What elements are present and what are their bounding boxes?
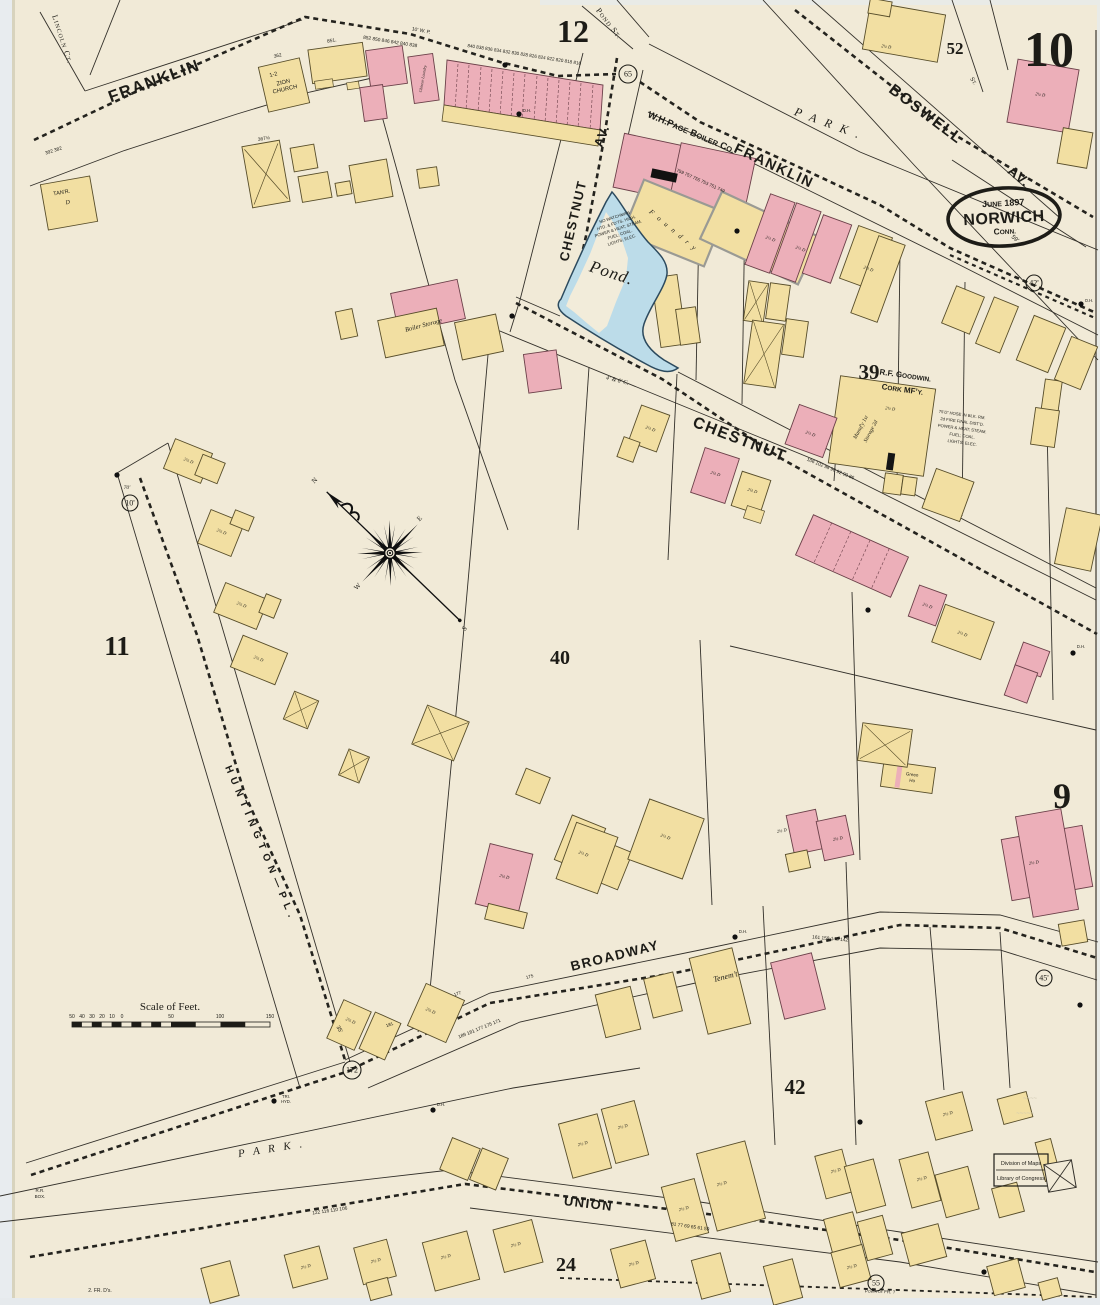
svg-text:Library of Congress: Library of Congress	[997, 1176, 1045, 1182]
svg-text:BOX.: BOX.	[35, 1194, 46, 1199]
svg-text:40: 40	[79, 1014, 85, 1020]
svg-text:D.H.: D.H.	[1077, 644, 1085, 649]
svg-text:9: 9	[1053, 776, 1071, 816]
svg-text:D.H.: D.H.	[437, 1102, 445, 1107]
svg-text:11: 11	[104, 631, 130, 661]
svg-text:2. FR. D's.: 2. FR. D's.	[88, 1288, 111, 1294]
svg-text:100: 100	[216, 1014, 225, 1020]
svg-text:150: 150	[266, 1014, 275, 1020]
svg-text:~~~~~: ~~~~~	[1016, 1111, 1034, 1117]
svg-text:20: 20	[99, 1014, 105, 1020]
svg-text:52: 52	[947, 39, 964, 58]
svg-text:30: 30	[89, 1014, 95, 1020]
svg-text:D.H.: D.H.	[739, 929, 747, 934]
svg-text:O.H.: O.H.	[1085, 298, 1094, 303]
svg-text:55: 55	[872, 1279, 880, 1288]
svg-text:10': 10'	[125, 499, 135, 508]
svg-text:0: 0	[121, 1014, 124, 1020]
svg-text:D.H.: D.H.	[523, 108, 531, 113]
svg-text:65: 65	[624, 70, 632, 79]
svg-text:HYD.: HYD.	[281, 1099, 291, 1104]
svg-text:10: 10	[1024, 21, 1074, 77]
svg-text:39: 39	[859, 360, 880, 384]
svg-text:R.R.: R.R.	[36, 1188, 45, 1193]
svg-text:Division of Maps: Division of Maps	[1001, 1161, 1042, 1167]
svg-text:10: 10	[109, 1014, 115, 1020]
svg-text:50: 50	[69, 1014, 75, 1020]
svg-text:172: 172	[346, 1066, 358, 1075]
svg-text:40: 40	[550, 647, 570, 669]
svg-text:42: 42	[785, 1075, 806, 1099]
svg-text:70': 70'	[124, 485, 132, 491]
svg-text:12: 12	[557, 13, 589, 49]
svg-text:~~~~: ~~~~	[1023, 1096, 1038, 1102]
svg-text:45': 45'	[1039, 974, 1049, 983]
svg-text:Scale of Feet.: Scale of Feet.	[140, 1001, 200, 1013]
svg-text:50: 50	[168, 1014, 174, 1020]
svg-text:24: 24	[556, 1254, 576, 1276]
svg-text:42': 42'	[1029, 279, 1039, 288]
